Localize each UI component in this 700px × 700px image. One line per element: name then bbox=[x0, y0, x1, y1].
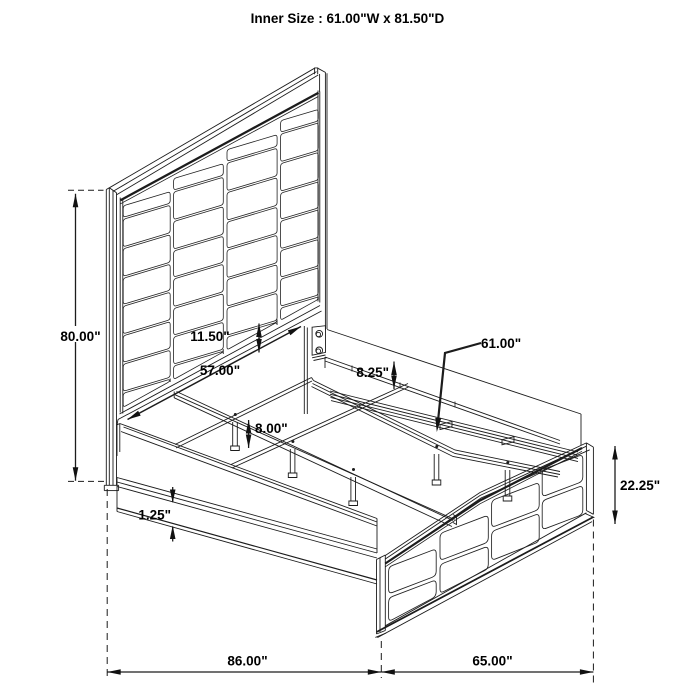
svg-text:57.00": 57.00" bbox=[200, 363, 240, 378]
svg-text:11.50": 11.50" bbox=[190, 329, 229, 344]
svg-text:22.25": 22.25" bbox=[620, 478, 660, 493]
svg-text:Inner Size : 61.00"W x 81.50"D: Inner Size : 61.00"W x 81.50"D bbox=[251, 11, 445, 26]
svg-text:1.25": 1.25" bbox=[138, 508, 171, 523]
svg-text:86.00": 86.00" bbox=[227, 654, 267, 669]
svg-text:65.00": 65.00" bbox=[472, 654, 512, 669]
svg-text:61.00": 61.00" bbox=[481, 336, 521, 351]
svg-text:8.00": 8.00" bbox=[255, 421, 288, 436]
svg-text:80.00": 80.00" bbox=[60, 329, 100, 344]
svg-text:8.25": 8.25" bbox=[356, 365, 389, 380]
